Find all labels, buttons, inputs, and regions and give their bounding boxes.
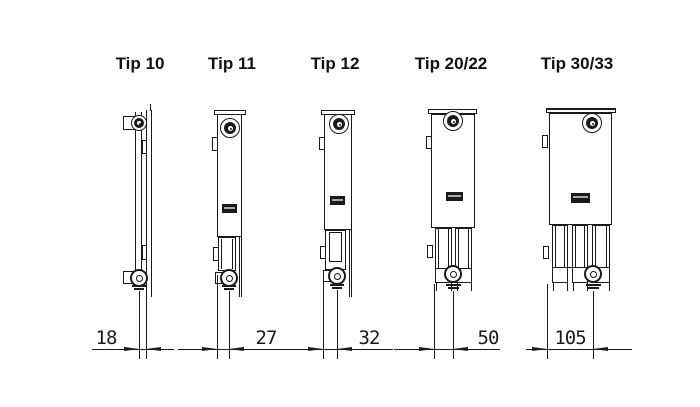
wall-tab-upper [319, 137, 325, 150]
dimension-value: 105 [554, 327, 585, 349]
panel-2-inner-walls [575, 225, 585, 267]
foot-spike [239, 291, 240, 297]
label-mark [573, 196, 588, 198]
dimension-value: 32 [359, 327, 380, 349]
foot-bar [446, 284, 461, 286]
dimension-arrow-icon [308, 347, 323, 351]
brand-label-plate [222, 204, 237, 213]
title-tip-30-33: Tip 30/33 [541, 54, 613, 74]
label-mark [332, 199, 343, 201]
valve-core [226, 275, 233, 282]
brand-label-plate [571, 193, 590, 203]
valve-dot [453, 121, 455, 123]
dimension-line [394, 349, 500, 350]
label-mark [224, 207, 235, 209]
air-vent-valve-icon [329, 114, 349, 134]
panel-inner-walls [221, 239, 233, 269]
air-vent-valve-icon [443, 111, 463, 131]
foot-bar [586, 284, 601, 286]
dimension-value: 50 [478, 327, 499, 349]
drain-valve-icon [444, 265, 462, 283]
valve-dot [592, 123, 594, 125]
dimension-arrow-icon [146, 347, 161, 351]
panel-1-inner-walls [555, 225, 565, 267]
foot-spike [553, 283, 554, 291]
title-tip-10: Tip 10 [116, 54, 165, 74]
wall-tab-lower [543, 246, 549, 259]
foot-spike [436, 283, 437, 291]
foot-bar [134, 288, 144, 290]
front-panel [135, 112, 142, 285]
foot-spike [573, 283, 574, 291]
title-tip-20-22: Tip 20/22 [415, 54, 487, 74]
extension-line [434, 284, 435, 359]
foot-bar [330, 284, 344, 286]
dimension-value: 27 [256, 327, 277, 349]
foot-spike [451, 283, 452, 291]
wall-tab-lower [213, 247, 219, 261]
body [431, 114, 475, 228]
dimension-value: 18 [96, 327, 117, 349]
back-plate [146, 110, 152, 291]
panel-2-inner-walls [458, 228, 469, 268]
air-vent-valve-icon [582, 113, 602, 133]
dimension-arrow-icon [419, 347, 434, 351]
foot-spike [351, 291, 352, 297]
foot-spike [471, 283, 472, 291]
foot-bar [588, 287, 599, 289]
dimension-arrow-icon [202, 347, 217, 351]
foot-bar [222, 285, 236, 287]
drain-valve-icon [328, 267, 346, 285]
dimension-arrow-icon [337, 347, 352, 351]
panel-3-inner-walls [595, 225, 607, 267]
foot-bar [332, 287, 342, 289]
back-plate [239, 237, 242, 291]
foot-spike [151, 291, 152, 297]
valve-core [590, 271, 597, 278]
foot-spike [567, 283, 568, 291]
valve-dot [230, 128, 232, 130]
label-mark [448, 195, 461, 197]
panel-bottom-line [552, 267, 610, 268]
panel-1-inner-walls [438, 228, 449, 268]
dimension-arrow-icon [124, 347, 139, 351]
air-vent-valve-icon [220, 118, 240, 138]
panel-inner-walls [329, 232, 342, 262]
foot-spike [241, 291, 242, 297]
title-tip-11: Tip 11 [208, 54, 256, 74]
wall-tab-lower [427, 245, 433, 258]
title-tip-12: Tip 12 [311, 54, 360, 74]
drain-valve-icon [584, 265, 602, 283]
extension-line [547, 284, 548, 359]
body [549, 113, 612, 225]
valve-core [450, 271, 457, 278]
foot-spike [349, 291, 350, 297]
dimension-arrow-icon [229, 347, 244, 351]
valve-core [136, 275, 143, 282]
extension-line [323, 272, 324, 359]
dimension-arrow-icon [593, 347, 608, 351]
wall-tab-upper [212, 137, 218, 151]
valve-dot [139, 123, 141, 125]
radiator-types-diagram: Tip 10 Tip 11 Tip 12 Tip 20/22 Tip 30/33… [0, 0, 700, 407]
foot-bar [132, 285, 146, 287]
air-vent-valve-icon [131, 115, 147, 131]
wall-tab-lower [320, 246, 326, 259]
valve-core [334, 273, 341, 280]
brand-label-plate [446, 192, 463, 201]
clip-upper [142, 140, 147, 154]
valve-dot [339, 124, 341, 126]
wall-tab-upper [542, 135, 548, 148]
foot-spike [457, 283, 458, 291]
dimension-arrow-icon [453, 347, 468, 351]
foot-bar [224, 288, 234, 290]
brand-label-plate [330, 196, 345, 205]
extension-line [217, 275, 218, 359]
foot-spike [587, 283, 588, 291]
back-plate [349, 230, 352, 291]
dimension-arrow-icon [532, 347, 547, 351]
clip-lower [142, 245, 147, 260]
foot-spike [609, 283, 610, 291]
wall-tab-upper [426, 136, 432, 149]
